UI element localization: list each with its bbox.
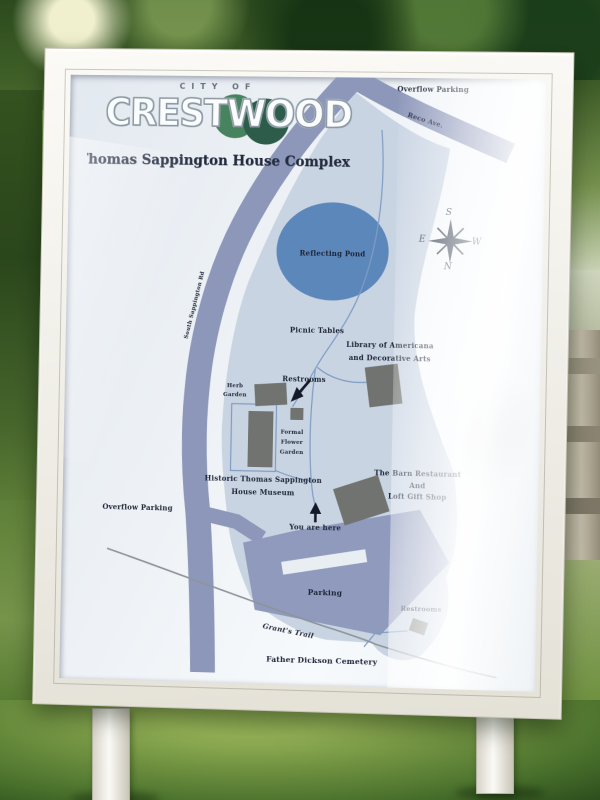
label-herb-line1: Herb <box>223 382 247 392</box>
label-reflecting-pond: Reflecting Pond <box>300 248 366 258</box>
sign-post-left <box>92 708 130 800</box>
compass-rose-icon <box>428 219 473 264</box>
map-sheet: CITY OF CRESTWOOD Thomas Sappington Hous… <box>59 75 546 692</box>
label-library-line2: and Decorative Arts <box>346 352 434 367</box>
label-picnic-tables: Picnic Tables <box>290 325 344 335</box>
label-barn-line3: Loft Gift Shop <box>374 490 461 504</box>
label-formal-line3: Garden <box>280 449 304 459</box>
label-museum-line2: House Museum <box>204 485 322 501</box>
label-museum: Historic Thomas Sappington House Museum <box>204 472 322 501</box>
photo-scene: CITY OF CRESTWOOD Thomas Sappington Hous… <box>0 0 600 800</box>
logo-crestwood: CRESTWOOD <box>105 91 311 136</box>
label-library: Library of Americana and Decorative Arts <box>346 339 434 367</box>
compass-west: W <box>472 237 482 247</box>
label-formal-line1: Formal <box>280 429 304 439</box>
label-barn-line1: The Barn Restaurant <box>374 467 461 481</box>
label-formal-garden: Formal Flower Garden <box>280 429 304 459</box>
label-barn: The Barn Restaurant And Loft Gift Shop <box>374 467 462 504</box>
label-herb-garden: Herb Garden <box>223 382 247 401</box>
label-parking: Parking <box>308 588 343 598</box>
label-overflow-parking-left: Overflow Parking <box>102 502 172 513</box>
label-overflow-parking-top: Overflow Parking <box>397 84 469 94</box>
map-title: Thomas Sappington House Complex <box>78 151 350 170</box>
compass-south: S <box>446 208 452 218</box>
building-restroom-small <box>290 408 303 420</box>
label-formal-line2: Flower <box>280 439 304 449</box>
compass-east: E <box>419 235 426 245</box>
sign-post-right <box>476 708 514 794</box>
label-restrooms-bottom: Restrooms <box>401 605 442 614</box>
site-map: CITY OF CRESTWOOD Thomas Sappington Hous… <box>77 75 538 682</box>
compass-north: N <box>444 262 452 272</box>
building-sappington-house <box>247 411 273 467</box>
tree-foliage-left <box>0 90 42 510</box>
label-herb-line2: Garden <box>223 391 247 401</box>
sign-board: CITY OF CRESTWOOD Thomas Sappington Hous… <box>32 48 574 720</box>
label-restrooms-center: Restrooms <box>282 374 326 384</box>
logo-city-of: CITY OF <box>180 82 257 92</box>
label-you-are-here: You are here <box>289 522 341 532</box>
building-herb-garden <box>254 383 287 407</box>
building-library <box>365 364 403 408</box>
grass-right <box>560 560 600 700</box>
